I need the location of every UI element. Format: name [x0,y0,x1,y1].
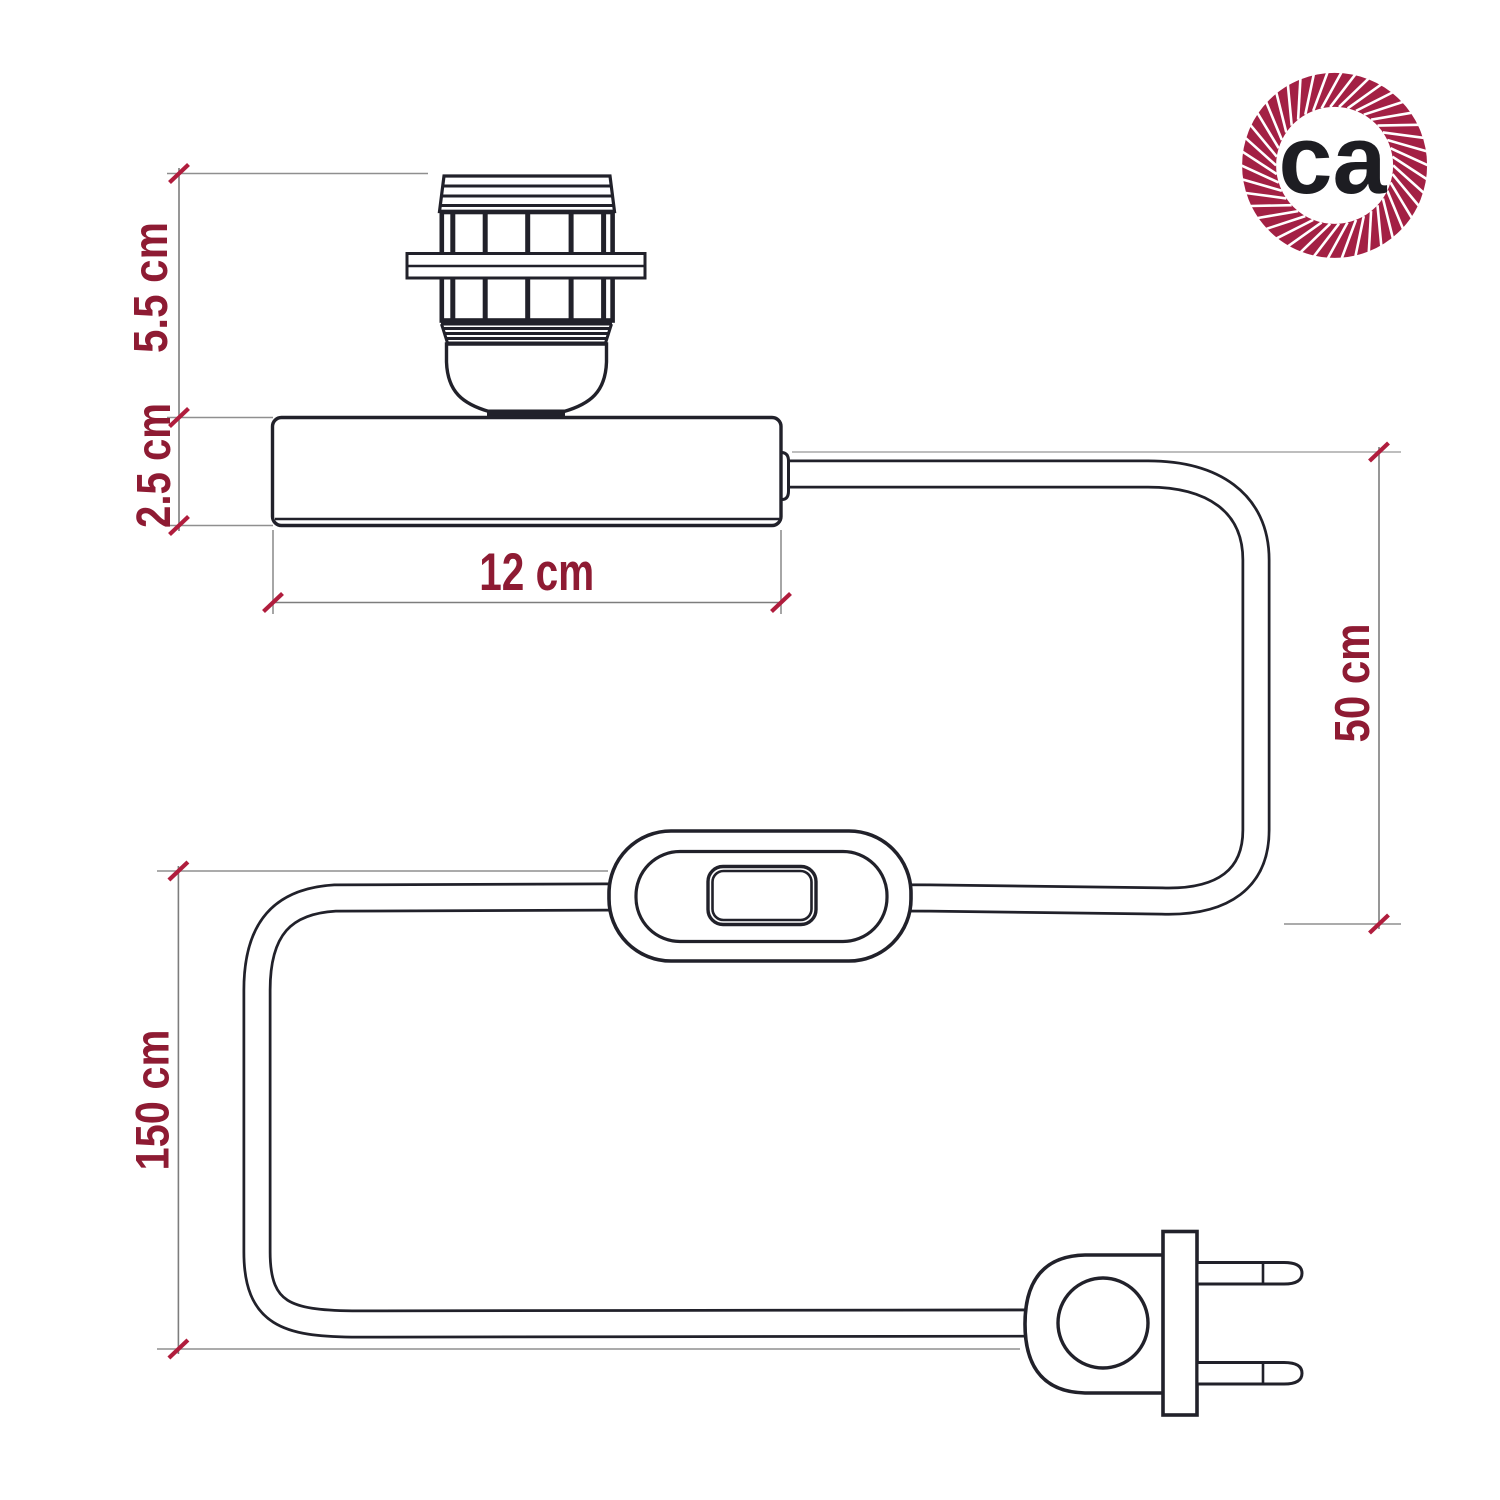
svg-text:ca: ca [1279,105,1388,214]
svg-text:50 cm: 50 cm [1326,624,1380,743]
svg-text:150 cm: 150 cm [126,1030,179,1171]
svg-text:5.5 cm: 5.5 cm [125,222,178,353]
svg-text:2.5 cm: 2.5 cm [128,403,181,528]
svg-text:12 cm: 12 cm [479,543,594,602]
